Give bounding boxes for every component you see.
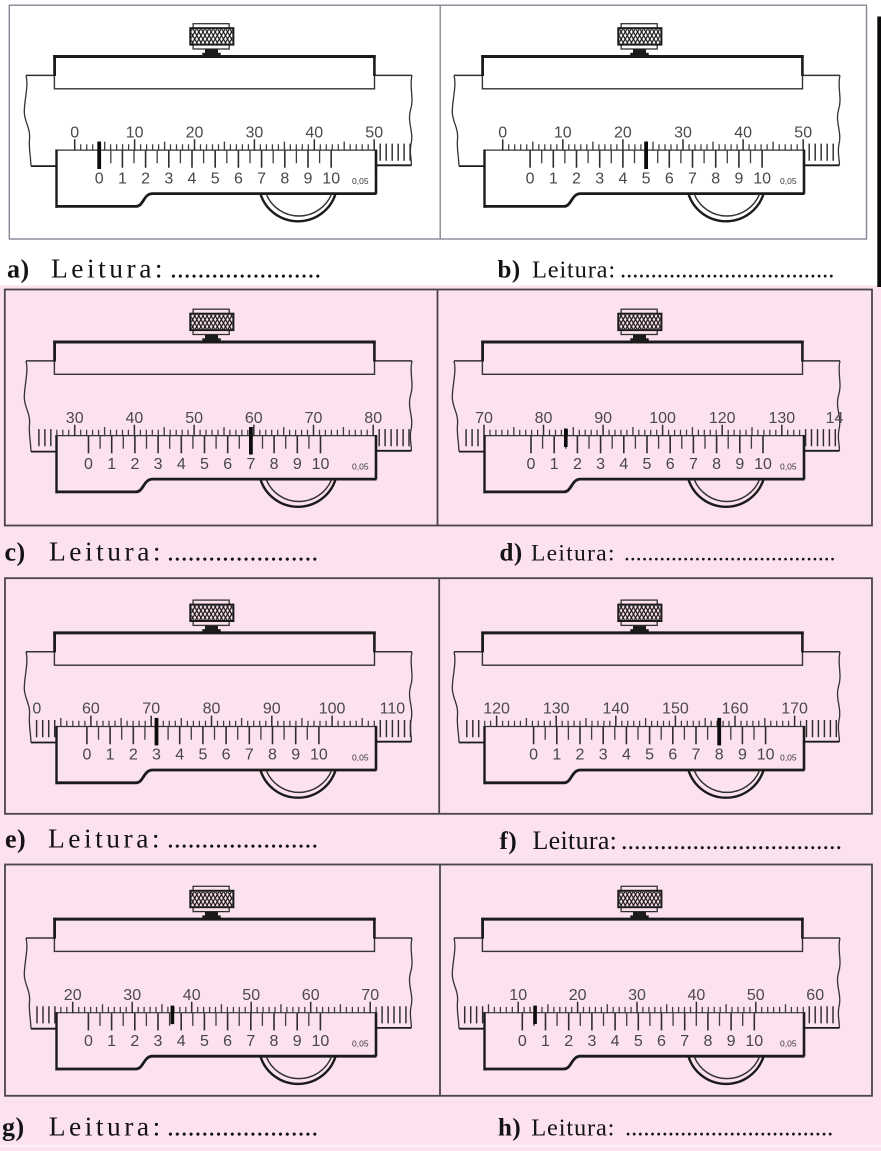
svg-text:8: 8 bbox=[715, 747, 724, 764]
svg-text:80: 80 bbox=[535, 410, 553, 427]
svg-text:20: 20 bbox=[614, 124, 632, 141]
svg-text:10: 10 bbox=[312, 1033, 330, 1050]
svg-text:..............................: .................................... bbox=[624, 540, 836, 566]
svg-text:1: 1 bbox=[552, 747, 561, 764]
svg-text:9: 9 bbox=[727, 1033, 736, 1050]
svg-text:10: 10 bbox=[310, 747, 328, 764]
svg-text:9: 9 bbox=[734, 170, 743, 187]
svg-text:h): h) bbox=[498, 1115, 521, 1142]
svg-text:2: 2 bbox=[129, 747, 138, 764]
svg-text:3: 3 bbox=[595, 170, 604, 187]
svg-text:14: 14 bbox=[826, 410, 844, 427]
svg-text:70: 70 bbox=[142, 701, 160, 718]
svg-text:2: 2 bbox=[130, 1033, 139, 1050]
svg-text:70: 70 bbox=[475, 410, 493, 427]
svg-text:20: 20 bbox=[186, 124, 204, 141]
svg-text:7: 7 bbox=[680, 1033, 689, 1050]
svg-text:6: 6 bbox=[223, 1033, 232, 1050]
svg-text:9: 9 bbox=[738, 747, 747, 764]
svg-text:1: 1 bbox=[550, 456, 559, 473]
svg-text:10: 10 bbox=[509, 987, 527, 1004]
svg-text:8: 8 bbox=[270, 1033, 279, 1050]
svg-text:7: 7 bbox=[246, 456, 255, 473]
svg-text:4: 4 bbox=[611, 1033, 620, 1050]
svg-text:10: 10 bbox=[312, 456, 330, 473]
svg-text:10: 10 bbox=[745, 1033, 763, 1050]
svg-text:50: 50 bbox=[242, 987, 260, 1004]
svg-text:20: 20 bbox=[64, 987, 82, 1004]
svg-text:150: 150 bbox=[662, 701, 689, 718]
svg-text:Leitura:: Leitura: bbox=[532, 256, 616, 283]
svg-text:40: 40 bbox=[126, 410, 144, 427]
svg-text:6: 6 bbox=[666, 456, 675, 473]
svg-text:50: 50 bbox=[185, 410, 203, 427]
svg-text:50: 50 bbox=[747, 987, 765, 1004]
svg-text:50: 50 bbox=[365, 124, 383, 141]
svg-text:6: 6 bbox=[657, 1033, 666, 1050]
svg-text:100: 100 bbox=[319, 701, 346, 718]
svg-text:30: 30 bbox=[66, 410, 84, 427]
svg-text:6: 6 bbox=[234, 170, 243, 187]
svg-text:..............................: .................................. bbox=[625, 1115, 833, 1142]
svg-text:0: 0 bbox=[84, 456, 93, 473]
svg-text:Leitura:: Leitura: bbox=[49, 535, 164, 566]
svg-text:8: 8 bbox=[712, 456, 721, 473]
svg-text:0: 0 bbox=[82, 747, 91, 764]
svg-text:2: 2 bbox=[572, 170, 581, 187]
svg-text:a): a) bbox=[7, 254, 30, 283]
svg-text:7: 7 bbox=[688, 170, 697, 187]
svg-text:10: 10 bbox=[754, 456, 772, 473]
svg-text:90: 90 bbox=[263, 701, 281, 718]
svg-text:0,05: 0,05 bbox=[352, 752, 369, 762]
svg-text:1: 1 bbox=[541, 1033, 550, 1050]
svg-text:4: 4 bbox=[188, 170, 197, 187]
svg-text:6: 6 bbox=[668, 747, 677, 764]
svg-text:10: 10 bbox=[757, 747, 775, 764]
svg-text:160: 160 bbox=[722, 701, 749, 718]
svg-text:6: 6 bbox=[223, 456, 232, 473]
svg-text:30: 30 bbox=[246, 124, 264, 141]
svg-text:110: 110 bbox=[380, 701, 406, 718]
svg-text:4: 4 bbox=[177, 1033, 186, 1050]
svg-text:2: 2 bbox=[141, 170, 150, 187]
svg-text:9: 9 bbox=[291, 747, 300, 764]
svg-text:5: 5 bbox=[200, 1033, 209, 1050]
svg-text:0: 0 bbox=[529, 747, 538, 764]
svg-text:3: 3 bbox=[599, 747, 608, 764]
svg-text:0,05: 0,05 bbox=[780, 176, 797, 186]
svg-text:4: 4 bbox=[618, 170, 627, 187]
svg-text:30: 30 bbox=[123, 987, 141, 1004]
svg-text:Leitura:: Leitura: bbox=[51, 252, 166, 283]
svg-text:20: 20 bbox=[569, 987, 587, 1004]
svg-text:9: 9 bbox=[304, 170, 313, 187]
svg-text:9: 9 bbox=[735, 456, 744, 473]
svg-text:2: 2 bbox=[576, 747, 585, 764]
svg-text:8: 8 bbox=[703, 1033, 712, 1050]
svg-text:4: 4 bbox=[619, 456, 628, 473]
svg-text:80: 80 bbox=[203, 701, 221, 718]
svg-text:0: 0 bbox=[518, 1033, 527, 1050]
svg-text:10: 10 bbox=[126, 124, 144, 141]
svg-text:5: 5 bbox=[211, 170, 220, 187]
svg-text:3: 3 bbox=[164, 170, 173, 187]
svg-text:8: 8 bbox=[711, 170, 720, 187]
svg-text:..............................: .................................. bbox=[621, 826, 842, 855]
svg-text:70: 70 bbox=[361, 987, 379, 1004]
svg-text:8: 8 bbox=[270, 456, 279, 473]
svg-text:5: 5 bbox=[642, 170, 651, 187]
svg-text:......................: ...................... bbox=[167, 823, 318, 854]
svg-text:0,05: 0,05 bbox=[352, 176, 369, 186]
svg-text:7: 7 bbox=[246, 1033, 255, 1050]
svg-text:40: 40 bbox=[688, 987, 706, 1004]
svg-text:9: 9 bbox=[293, 1033, 302, 1050]
svg-text:g): g) bbox=[2, 1113, 25, 1142]
svg-text:0: 0 bbox=[32, 701, 41, 718]
svg-text:1: 1 bbox=[549, 170, 558, 187]
svg-text:3: 3 bbox=[154, 456, 163, 473]
svg-text:..............................: ................................... bbox=[620, 256, 834, 283]
svg-text:140: 140 bbox=[602, 701, 629, 718]
svg-text:0: 0 bbox=[95, 170, 104, 187]
svg-text:60: 60 bbox=[82, 701, 100, 718]
svg-text:40: 40 bbox=[305, 124, 323, 141]
svg-text:6: 6 bbox=[222, 747, 231, 764]
svg-text:......................: ...................... bbox=[167, 1111, 318, 1142]
svg-text:40: 40 bbox=[734, 124, 752, 141]
svg-text:1: 1 bbox=[107, 456, 116, 473]
svg-text:4: 4 bbox=[177, 456, 186, 473]
svg-text:0: 0 bbox=[526, 170, 535, 187]
svg-text:b): b) bbox=[498, 256, 521, 283]
svg-text:10: 10 bbox=[322, 170, 340, 187]
svg-text:8: 8 bbox=[280, 170, 289, 187]
svg-text:0,05: 0,05 bbox=[352, 1039, 369, 1049]
svg-text:2: 2 bbox=[573, 456, 582, 473]
svg-text:5: 5 bbox=[198, 747, 207, 764]
svg-text:0: 0 bbox=[527, 456, 536, 473]
svg-text:7: 7 bbox=[689, 456, 698, 473]
svg-text:f): f) bbox=[500, 828, 518, 855]
svg-text:60: 60 bbox=[806, 987, 824, 1004]
svg-text:30: 30 bbox=[628, 987, 646, 1004]
svg-text:170: 170 bbox=[781, 701, 808, 718]
svg-text:1: 1 bbox=[106, 747, 115, 764]
svg-text:2: 2 bbox=[130, 456, 139, 473]
svg-text:70: 70 bbox=[305, 410, 323, 427]
svg-text:0,05: 0,05 bbox=[780, 1039, 797, 1049]
svg-text:7: 7 bbox=[245, 747, 254, 764]
svg-text:0: 0 bbox=[70, 124, 79, 141]
svg-text:7: 7 bbox=[692, 747, 701, 764]
svg-text:0: 0 bbox=[84, 1033, 93, 1050]
svg-text:3: 3 bbox=[154, 1033, 163, 1050]
svg-text:130: 130 bbox=[768, 410, 795, 427]
svg-text:7: 7 bbox=[257, 170, 266, 187]
svg-text:0: 0 bbox=[498, 124, 507, 141]
svg-text:10: 10 bbox=[753, 170, 771, 187]
svg-text:Leitura:: Leitura: bbox=[48, 823, 163, 854]
svg-text:5: 5 bbox=[200, 456, 209, 473]
svg-text:50: 50 bbox=[794, 124, 812, 141]
svg-text:40: 40 bbox=[183, 987, 201, 1004]
svg-text:60: 60 bbox=[245, 410, 263, 427]
svg-text:100: 100 bbox=[649, 410, 676, 427]
svg-text:Leitura:: Leitura: bbox=[531, 1115, 615, 1142]
svg-text:60: 60 bbox=[302, 987, 320, 1004]
svg-text:5: 5 bbox=[645, 747, 654, 764]
svg-text:90: 90 bbox=[594, 410, 612, 427]
svg-text:Leitura:: Leitura: bbox=[531, 540, 616, 566]
svg-text:Leitura:: Leitura: bbox=[49, 1111, 164, 1142]
svg-text:0,05: 0,05 bbox=[780, 752, 797, 762]
svg-text:1: 1 bbox=[107, 1033, 116, 1050]
svg-text:3: 3 bbox=[152, 747, 161, 764]
svg-text:3: 3 bbox=[596, 456, 605, 473]
svg-text:30: 30 bbox=[674, 124, 692, 141]
svg-text:6: 6 bbox=[665, 170, 674, 187]
svg-text:5: 5 bbox=[634, 1033, 643, 1050]
svg-text:5: 5 bbox=[643, 456, 652, 473]
svg-text:Leitura:: Leitura: bbox=[533, 826, 618, 855]
svg-text:10: 10 bbox=[554, 124, 572, 141]
svg-text:9: 9 bbox=[293, 456, 302, 473]
svg-text:......................: ...................... bbox=[170, 252, 321, 283]
svg-text:d): d) bbox=[500, 539, 523, 566]
svg-text:120: 120 bbox=[709, 410, 736, 427]
svg-text:4: 4 bbox=[175, 747, 184, 764]
svg-text:3: 3 bbox=[587, 1033, 596, 1050]
svg-text:c): c) bbox=[5, 537, 26, 566]
svg-text:e): e) bbox=[5, 825, 26, 854]
svg-text:2: 2 bbox=[564, 1033, 573, 1050]
svg-text:8: 8 bbox=[268, 747, 277, 764]
svg-text:0,05: 0,05 bbox=[352, 462, 369, 472]
svg-text:1: 1 bbox=[118, 170, 127, 187]
svg-text:120: 120 bbox=[483, 701, 510, 718]
svg-text:......................: ...................... bbox=[167, 535, 318, 566]
svg-text:4: 4 bbox=[622, 747, 631, 764]
svg-text:80: 80 bbox=[364, 410, 382, 427]
svg-text:0,05: 0,05 bbox=[780, 462, 797, 472]
svg-text:130: 130 bbox=[543, 701, 570, 718]
